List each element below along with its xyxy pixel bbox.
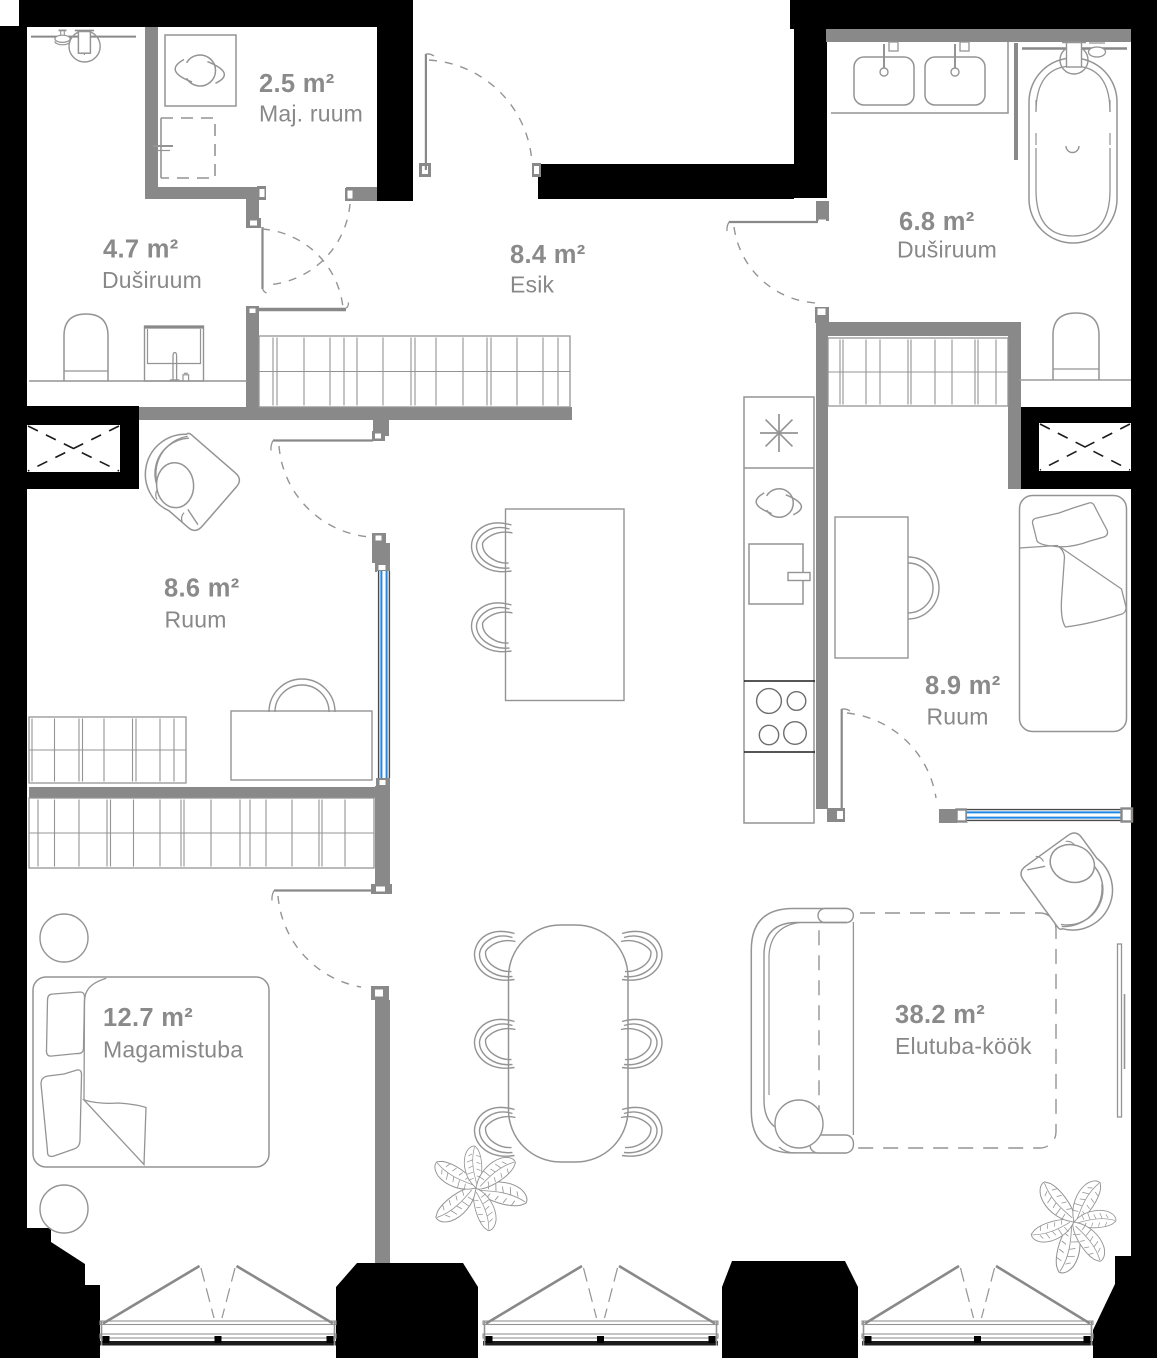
- svg-text:Elutuba-köök: Elutuba-köök: [895, 1033, 1032, 1059]
- svg-text:8.6 m²: 8.6 m²: [164, 575, 240, 603]
- svg-text:2.5 m²: 2.5 m²: [259, 70, 335, 98]
- svg-text:Duširuum: Duširuum: [102, 267, 202, 293]
- svg-text:8.4 m²: 8.4 m²: [510, 241, 586, 269]
- svg-text:4.7 m²: 4.7 m²: [103, 236, 179, 264]
- svg-text:Duširuum: Duširuum: [897, 237, 997, 263]
- svg-text:Ruum: Ruum: [165, 607, 227, 633]
- svg-text:12.7 m²: 12.7 m²: [103, 1004, 193, 1032]
- svg-text:Ruum: Ruum: [927, 704, 989, 730]
- svg-text:Maj. ruum: Maj. ruum: [259, 101, 363, 127]
- svg-text:38.2 m²: 38.2 m²: [895, 1001, 985, 1029]
- svg-text:8.9 m²: 8.9 m²: [925, 672, 1001, 700]
- svg-text:6.8 m²: 6.8 m²: [899, 208, 975, 236]
- svg-text:Esik: Esik: [510, 272, 555, 298]
- svg-text:Magamistuba: Magamistuba: [103, 1037, 243, 1063]
